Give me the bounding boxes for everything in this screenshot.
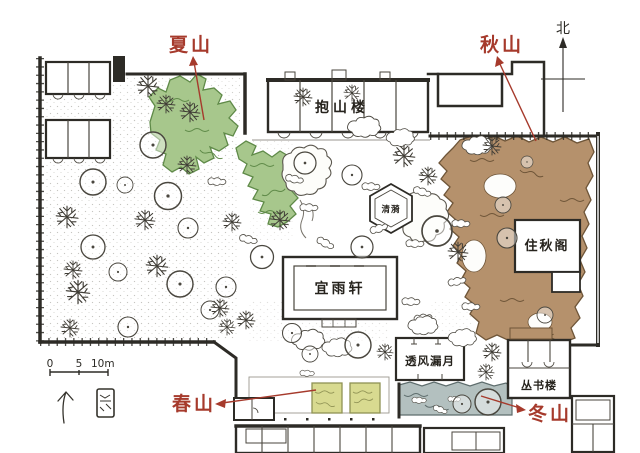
zhuqiuge-annex — [552, 272, 580, 292]
west-residence-1 — [46, 62, 110, 99]
bed-column-marks — [262, 418, 375, 421]
tree-icon — [342, 165, 362, 185]
tree-icon — [495, 197, 511, 213]
tree-icon — [497, 228, 517, 248]
scale-tick-10m: 10m — [91, 358, 115, 370]
yiyuxuan-hall: 宜雨轩 — [283, 257, 397, 327]
autumn-annotation: 秋山 — [480, 33, 536, 141]
signature-marks — [58, 389, 114, 423]
shrub-icon — [377, 344, 393, 360]
cloud-tree-icon — [408, 316, 438, 335]
column-mark — [284, 418, 287, 421]
spring-arrow-head — [215, 399, 226, 408]
scale-tick-5: 5 — [76, 358, 83, 370]
seal-border — [97, 389, 114, 417]
congshulou-label: 丛书楼 — [521, 378, 557, 392]
up-arrow — [58, 392, 73, 423]
column-mark — [350, 418, 353, 421]
tree-icon — [140, 132, 166, 158]
zhuqiuge-label: 住秋阁 — [524, 238, 569, 254]
shrub-icon — [483, 343, 501, 361]
baoshanlou-label: 抱山楼 — [315, 99, 369, 116]
tree-icon — [294, 152, 316, 174]
summer-arrow-head — [189, 56, 198, 66]
scale-bar: 0 5 10m — [47, 358, 115, 376]
autumn-rockery-tip — [510, 328, 552, 339]
tree-icon — [81, 235, 105, 259]
tree-icon — [167, 271, 193, 297]
tree-icon — [109, 263, 127, 281]
autumn-clearing — [484, 174, 516, 198]
entrance-wall — [214, 342, 236, 398]
winter-label: 冬山 — [528, 402, 572, 425]
west-residence-1-outline — [46, 62, 110, 94]
qingyi-label: 清漪 — [381, 204, 400, 215]
tree-icon — [155, 183, 182, 210]
autumn-arrow-head — [495, 56, 504, 67]
tree-icon — [302, 346, 318, 362]
tree-icon — [453, 395, 471, 413]
tree-icon — [521, 156, 533, 168]
spring-bed-2 — [350, 383, 380, 413]
seal-stamp — [97, 389, 114, 417]
column-mark — [372, 418, 375, 421]
tree-icon — [283, 324, 302, 343]
tree-icon — [537, 307, 553, 323]
summer-label: 夏山 — [169, 34, 213, 56]
tree-icon — [345, 332, 371, 358]
north-arrow-head — [559, 37, 567, 48]
gate-block — [113, 56, 125, 82]
rock-icon — [402, 298, 420, 306]
tree-icon — [422, 216, 452, 246]
rock-icon — [362, 183, 380, 191]
yiyuxuan-label: 宜雨轩 — [315, 280, 366, 297]
northeast-building-inner — [438, 74, 502, 106]
tree-icon — [251, 246, 274, 269]
north-label: 北 — [556, 21, 570, 37]
tree-icon — [475, 389, 501, 415]
tree-icon — [178, 218, 198, 238]
shrub-icon — [393, 145, 415, 167]
shrub-icon — [419, 167, 437, 185]
autumn-leader-line — [499, 62, 536, 141]
toufenglouyue-label: 透风漏月 — [405, 354, 455, 368]
scale-bar-line — [50, 369, 108, 376]
west-residence-2-outline — [46, 120, 110, 158]
northeast-building-outline — [428, 62, 544, 134]
tree-icon — [351, 236, 373, 258]
shrub-icon — [478, 364, 494, 380]
rock-icon — [300, 370, 314, 376]
autumn-label: 秋山 — [480, 33, 524, 56]
north-indicator: 北 — [541, 21, 585, 112]
garden-plan: 抱山楼 清漪 住秋阁 宜雨轩 — [0, 0, 640, 453]
spring-bed-1 — [312, 383, 342, 413]
rock-icon — [316, 236, 336, 251]
scale-tick-0: 0 — [47, 358, 54, 370]
tree-icon — [216, 277, 236, 297]
column-mark — [328, 418, 331, 421]
spring-label: 春山 — [172, 392, 216, 415]
column-mark — [306, 418, 309, 421]
rock-icon — [300, 204, 318, 212]
tree-icon — [117, 177, 133, 193]
congshulou-building: 丛书楼 — [508, 340, 570, 398]
winter-arrow-head — [516, 404, 526, 413]
tree-icon — [118, 317, 138, 337]
tree-icon — [80, 169, 106, 195]
entry-structure — [234, 398, 274, 420]
west-residence-2 — [46, 120, 110, 163]
garden-plan-svg: 抱山楼 清漪 住秋阁 宜雨轩 — [0, 0, 640, 453]
